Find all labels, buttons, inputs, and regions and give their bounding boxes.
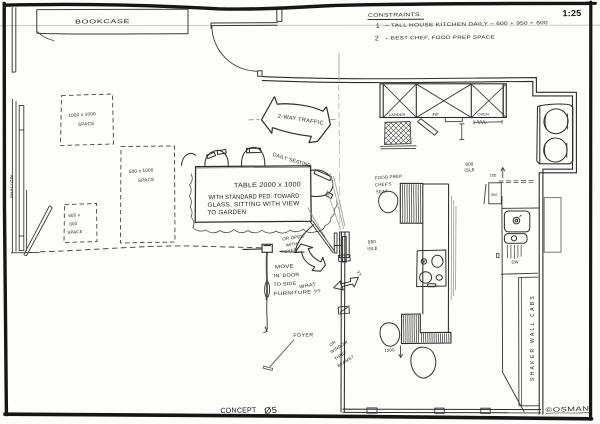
svg-text:1200: 1200 <box>384 347 395 353</box>
svg-text:TO GARDEN: TO GARDEN <box>207 209 246 217</box>
svg-text:CONSTRAINTS:: CONSTRAINTS: <box>368 12 422 19</box>
svg-text:CONCEPT: CONCEPT <box>220 405 256 415</box>
svg-text:ISLE: ISLE <box>464 167 475 173</box>
svg-text:SEAT: SEAT <box>376 189 388 195</box>
svg-text:DW: DW <box>512 260 519 265</box>
svg-text:600: 600 <box>69 221 78 227</box>
svg-text:Ø5: Ø5 <box>264 405 278 416</box>
svg-text:OVEN: OVEN <box>478 111 490 116</box>
svg-text:300: 300 <box>491 193 498 197</box>
svg-text:LARDER: LARDER <box>389 112 405 117</box>
svg-text:700: 700 <box>489 173 497 178</box>
svg-text:SHAKER WALL CABS: SHAKER WALL CABS <box>530 294 536 381</box>
svg-text:ISLE: ISLE <box>367 246 378 252</box>
svg-text:– BEST CHEF, FOOD PREP SPACE: – BEST CHEF, FOOD PREP SPACE <box>385 35 495 42</box>
svg-text:600 x: 600 x <box>68 212 81 218</box>
svg-text:TO SIDE: TO SIDE <box>273 281 296 288</box>
svg-text:2: 2 <box>375 35 379 42</box>
svg-text:FOYER: FOYER <box>293 332 313 339</box>
svg-text:MOVE: MOVE <box>275 263 295 270</box>
svg-text:900: 900 <box>465 161 474 167</box>
svg-text:SHALLOW: SHALLOW <box>9 175 14 198</box>
svg-text:BOOKCASE: BOOKCASE <box>75 19 130 25</box>
svg-text:F/F: F/F <box>433 112 440 117</box>
svg-text:1: 1 <box>376 23 380 30</box>
svg-text:TABLE 2000 x 1000: TABLE 2000 x 1000 <box>234 181 301 189</box>
svg-text:950: 950 <box>368 239 377 245</box>
svg-text:1:25: 1:25 <box>562 8 581 18</box>
